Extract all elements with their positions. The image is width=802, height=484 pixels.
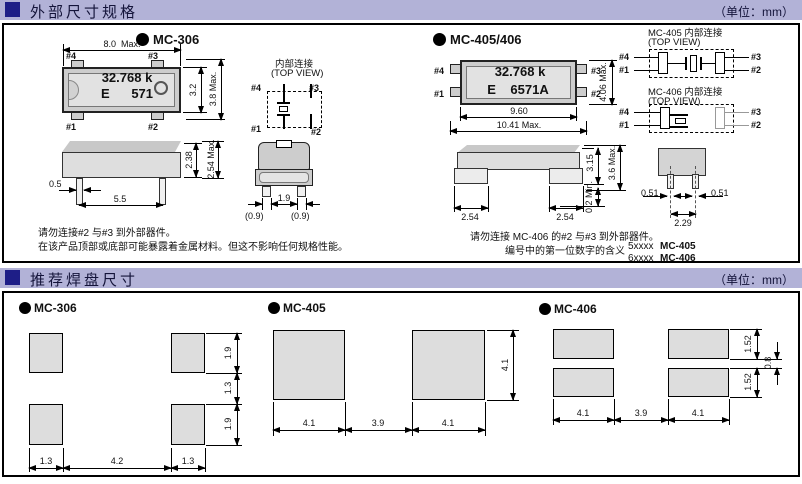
pads405-dim-pad-height: 4.1 [500,359,510,372]
mc405-internal-pin4: #4 [619,52,629,62]
pads405-dim-pad-width-left: 4.1 [303,418,316,428]
mc405-internal-pin1: #1 [619,65,629,75]
dim-line [218,141,219,178]
pads306-pad-top-left [29,333,63,373]
dim-line [237,373,238,404]
section-marker-square [5,270,20,285]
internal-wire-nc [725,125,749,126]
mc306-note-1: 请勿连接#2 与#3 到外部器件。 [38,224,176,239]
dim-line [201,67,202,113]
pads406-pad-top-left [553,329,614,359]
mc306-side-top-face [62,141,181,152]
dim-line [29,468,63,469]
dim-line [777,342,778,359]
dim-line [63,50,181,51]
mc406-internal-pin4: #4 [619,107,629,117]
mc405406-dim-overall-width: 10.41 Max. [497,120,542,130]
internal-wire-nc [725,112,749,113]
section-pads-header: 推荐焊盘尺寸 （单位：mm） [0,268,802,288]
pads405-dim-pad-width-right: 4.1 [442,418,455,428]
mc405406-dim-overall-height: 4.06 Max. [598,62,608,102]
dim-line [757,329,758,359]
mc306-internal-pin1: #1 [251,124,261,134]
mc405-internal-pad-left [658,52,668,74]
pads306-pad-bottom-right [171,404,205,445]
section-pads-unit: （单位：mm） [714,271,794,288]
pads406-pad-bottom-right [668,368,729,397]
mc405406-marking-frequency: 32.768 k [495,64,546,79]
dim-line [84,190,101,191]
pads306-dim-pad-height-top: 1.9 [223,347,233,360]
mc405406-dim-foot-left: 2.54 [461,212,479,222]
mc405-numbering-code: 5xxxx [628,241,654,252]
mc306-label: MC-306 [153,32,199,47]
mc306-lead-left [76,178,83,205]
extension-line [582,148,594,149]
mc406-internal-pin2: #2 [751,120,761,130]
pads306-dim-pad-width-left: 1.3 [40,456,53,466]
dim-line [513,330,514,400]
mc306-dim-end-right: (0.9) [291,211,310,221]
mc405-internal-subtitle: (TOP VIEW) [648,37,700,48]
mc306-dim-end-left: (0.9) [245,211,264,221]
dim-line [671,214,696,215]
internal-wire [310,84,312,98]
mc406-numbering-code: 6xxxx [628,253,654,264]
datasheet-page: 外部尺寸规格 （单位：mm） MC-306 8.0 Max. #4 #3 #1 … [0,0,802,484]
dim-line [777,368,778,385]
dim-line [598,148,599,184]
mc306-end-lead-left [262,186,271,197]
mc405-internal-pin3: #3 [751,52,761,62]
mc306-dim-end-lead-span: 1.9 [278,193,291,203]
dim-line [59,190,76,191]
pads306-dim-column-gap: 4.2 [111,456,124,466]
dim-line [683,196,692,197]
mc405406-end-body [658,148,706,176]
dim-line [757,368,758,397]
crystal-plate [670,114,688,116]
mc405406-dim-lead-pitch: 2.29 [674,218,692,228]
dim-line [412,430,485,431]
mc306-internal-pin4: #4 [251,83,261,93]
dim-line [614,420,668,421]
mc405406-dim-side-body-height: 3.15 [585,154,595,172]
mc405406-pin2-tab [576,87,587,97]
mc405406-note-2: 编号中的第一位数字的含义 [505,242,625,257]
dim-line [79,205,163,206]
internal-wire [702,63,715,64]
pads405-pad-left [273,330,345,400]
pads405-pad-right [412,330,485,400]
mc306-dim-side-overall-height: 2.54 Max. [206,139,216,179]
mc306-dim-overall-height: 3.8 Max. [208,72,218,107]
mc306-dim-lead-width: 0.5 [49,179,62,189]
crystal-plate [670,126,688,128]
mc306-marking-frequency: 32.768 k [102,70,153,85]
mc306-pin1-label: #1 [66,122,76,132]
pads306-dim-pad-width-right: 1.3 [182,456,195,466]
dim-line [549,208,583,209]
mc406-internal-pad-left [660,107,670,129]
mc405406-dim-foot-right: 2.54 [556,212,574,222]
mc306-side-body [62,152,181,178]
mc405406-pin3-tab [576,64,587,74]
dim-line [454,208,488,209]
dim-line [598,188,599,206]
pads406-dim-pad-width-left: 4.1 [577,408,590,418]
mc405406-foot-left [454,168,488,184]
section-outer-header: 外部尺寸规格 （单位：mm） [0,0,802,20]
pads406-dim-pad-height-bottom: 1.52 [743,373,753,391]
bullet-icon [433,33,446,46]
internal-wire [634,125,660,126]
pads406-dim-row-gap: 0.8 [763,357,773,370]
mc306-lead-right [159,178,166,205]
mc406-internal-pad-right-nc [715,107,725,129]
mc405406-label: MC-405/406 [450,32,522,47]
section-outer-title: 外部尺寸规格 [30,1,138,22]
crystal-plate [277,102,290,104]
mc306-pin2-tab [151,112,164,120]
dim-line [221,59,222,120]
dim-line [553,420,614,421]
mc306-pin2-label: #2 [148,122,158,132]
internal-wire [283,84,285,102]
pads306-label: MC-306 [34,301,77,315]
pads306-pad-top-right [171,333,205,373]
mc405-internal-pad-right [715,52,725,74]
mc306-pin1-tab [71,112,84,120]
dim-line [237,333,238,373]
pads406-dim-pad-width-right: 4.1 [692,408,705,418]
mc306-internal-outline [267,91,322,128]
dim-line [171,468,205,469]
mc406-internal-pin1: #1 [619,120,629,130]
dim-line [612,60,613,105]
internal-wire [634,57,658,58]
mc405406-pin4-label: #4 [434,66,444,76]
bullet-icon [539,303,551,315]
pads406-pad-bottom-left [553,368,614,397]
mc306-internal-subtitle: (TOP VIEW) [271,68,323,79]
internal-wire [634,112,660,113]
dim-line [668,420,729,421]
crystal-symbol [690,55,697,72]
crystal-symbol [279,106,288,112]
mc405406-pin1-label: #1 [434,89,444,99]
section-pads-title: 推荐焊盘尺寸 [30,269,138,290]
mc306-dim-side-body-height: 2.38 [184,151,194,169]
dim-line [674,196,683,197]
mc405406-foot-right [549,168,583,184]
internal-wire [634,70,658,71]
internal-wire [725,70,749,71]
mc405406-marking-lot: E 6571A [487,82,548,97]
dim-line [643,196,667,197]
mc306-dim-body-width: 8.0 Max. [103,39,140,49]
mc306-dim-body-height: 3.2 [188,84,198,97]
dim-line [306,204,320,205]
dim-line [237,404,238,445]
pads306-pad-bottom-left [29,404,63,445]
mc405406-dim-standoff: 0.2 Min. [584,181,594,213]
mc406-numbering-model: MC-406 [660,253,696,264]
dim-line [248,204,262,205]
mc405-internal-pin2: #2 [751,65,761,75]
crystal-plate [685,57,687,70]
dim-line [196,143,197,177]
dim-line [273,430,345,431]
dim-line [699,196,723,197]
pads306-dim-pad-height-bottom: 1.9 [223,418,233,431]
dim-line [460,117,577,118]
bullet-icon [19,302,31,314]
mc306-internal-pin2: #2 [311,127,321,137]
mc306-marking-lot: E 571 [101,86,153,101]
mc306-end-base-inner [259,172,309,183]
crystal-symbol [675,118,686,124]
dim-line [620,145,621,190]
mc406-internal-pin3: #3 [751,107,761,117]
dim-line [63,468,171,469]
pads406-dim-pad-height-top: 1.52 [743,335,753,353]
internal-wire [283,116,285,129]
dim-line [345,430,412,431]
internal-wire [725,57,749,58]
section-marker-square [5,2,20,17]
dim-line [271,204,297,205]
mc306-seal-hole [154,81,168,95]
pads406-dim-gap: 3.9 [635,408,648,418]
bullet-icon [268,302,280,314]
mc405-numbering-model: MC-405 [660,241,696,252]
internal-wire [310,114,312,129]
dim-line [450,131,587,132]
mc306-orientation-notch [68,80,79,100]
section-outer-unit: （单位：mm） [714,3,794,20]
pads405-dim-gap: 3.9 [372,418,385,428]
mc405406-dim-body-width: 9.60 [510,106,528,116]
mc306-end-lead-right [297,186,306,197]
mc306-dim-lead-pitch: 5.5 [114,194,127,204]
pads306-dim-row-gap: 1.3 [223,382,233,395]
pads405-label: MC-405 [283,301,326,315]
internal-wire [668,63,685,64]
pads406-label: MC-406 [554,302,597,316]
mc306-note-2: 在该产品顶部或底部可能暴露着金属材料。但这不影响任何规格性能。 [38,238,348,253]
mc405406-dim-side-overall-height: 3.6 Max. [607,146,617,181]
pads406-pad-top-right [668,329,729,359]
mc306-end-notch [276,140,292,148]
